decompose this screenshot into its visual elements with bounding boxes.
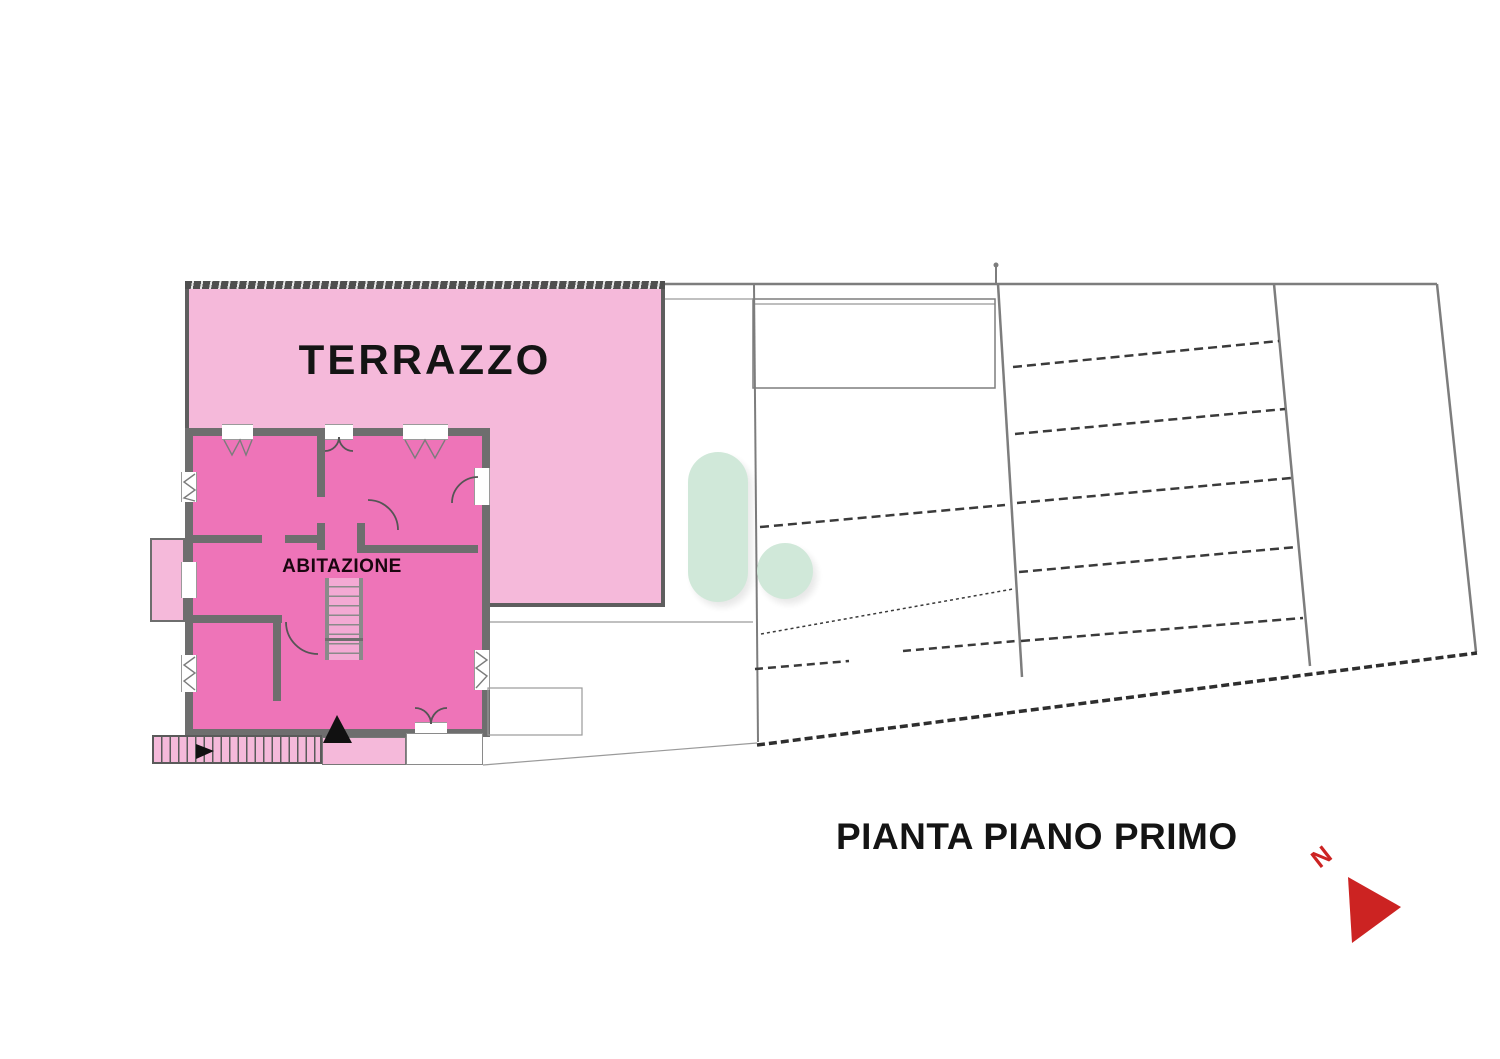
window-left-1 — [181, 472, 197, 502]
internal-stair-landing — [325, 638, 363, 641]
wall-internal — [317, 436, 325, 497]
stair-landing — [322, 737, 406, 765]
terrace-label: TERRAZZO — [185, 336, 665, 384]
porch-outline — [406, 733, 483, 765]
wall-internal — [192, 615, 282, 623]
wall-internal — [192, 535, 262, 543]
north-arrow-icon — [1348, 877, 1401, 943]
dwelling-label: ABITAZIONE — [272, 556, 412, 578]
north-label: N — [1306, 841, 1338, 875]
french-door-top — [325, 424, 353, 440]
floor-plan-canvas: TERRAZZO ABITAZIONE — [0, 0, 1500, 1059]
window-top-right — [403, 424, 448, 440]
window-left-2 — [181, 562, 197, 598]
window-right-2 — [474, 650, 490, 690]
window-left-3 — [181, 655, 197, 692]
external-stair — [152, 735, 322, 764]
roof-hatch-lines — [755, 341, 1477, 745]
internal-stair — [325, 578, 363, 660]
balcony — [150, 538, 185, 622]
window-top-left — [222, 424, 253, 440]
plan-caption: PIANTA PIANO PRIMO — [836, 816, 1238, 858]
terrace-top-hatch — [185, 281, 665, 289]
watermark-logo-pill — [688, 452, 748, 602]
window-right-1 — [474, 468, 490, 505]
watermark-logo-dot — [757, 543, 813, 599]
wall-internal — [273, 623, 281, 701]
wall-internal — [357, 545, 478, 553]
roof-outline — [665, 263, 1476, 743]
wall-internal — [285, 535, 325, 543]
